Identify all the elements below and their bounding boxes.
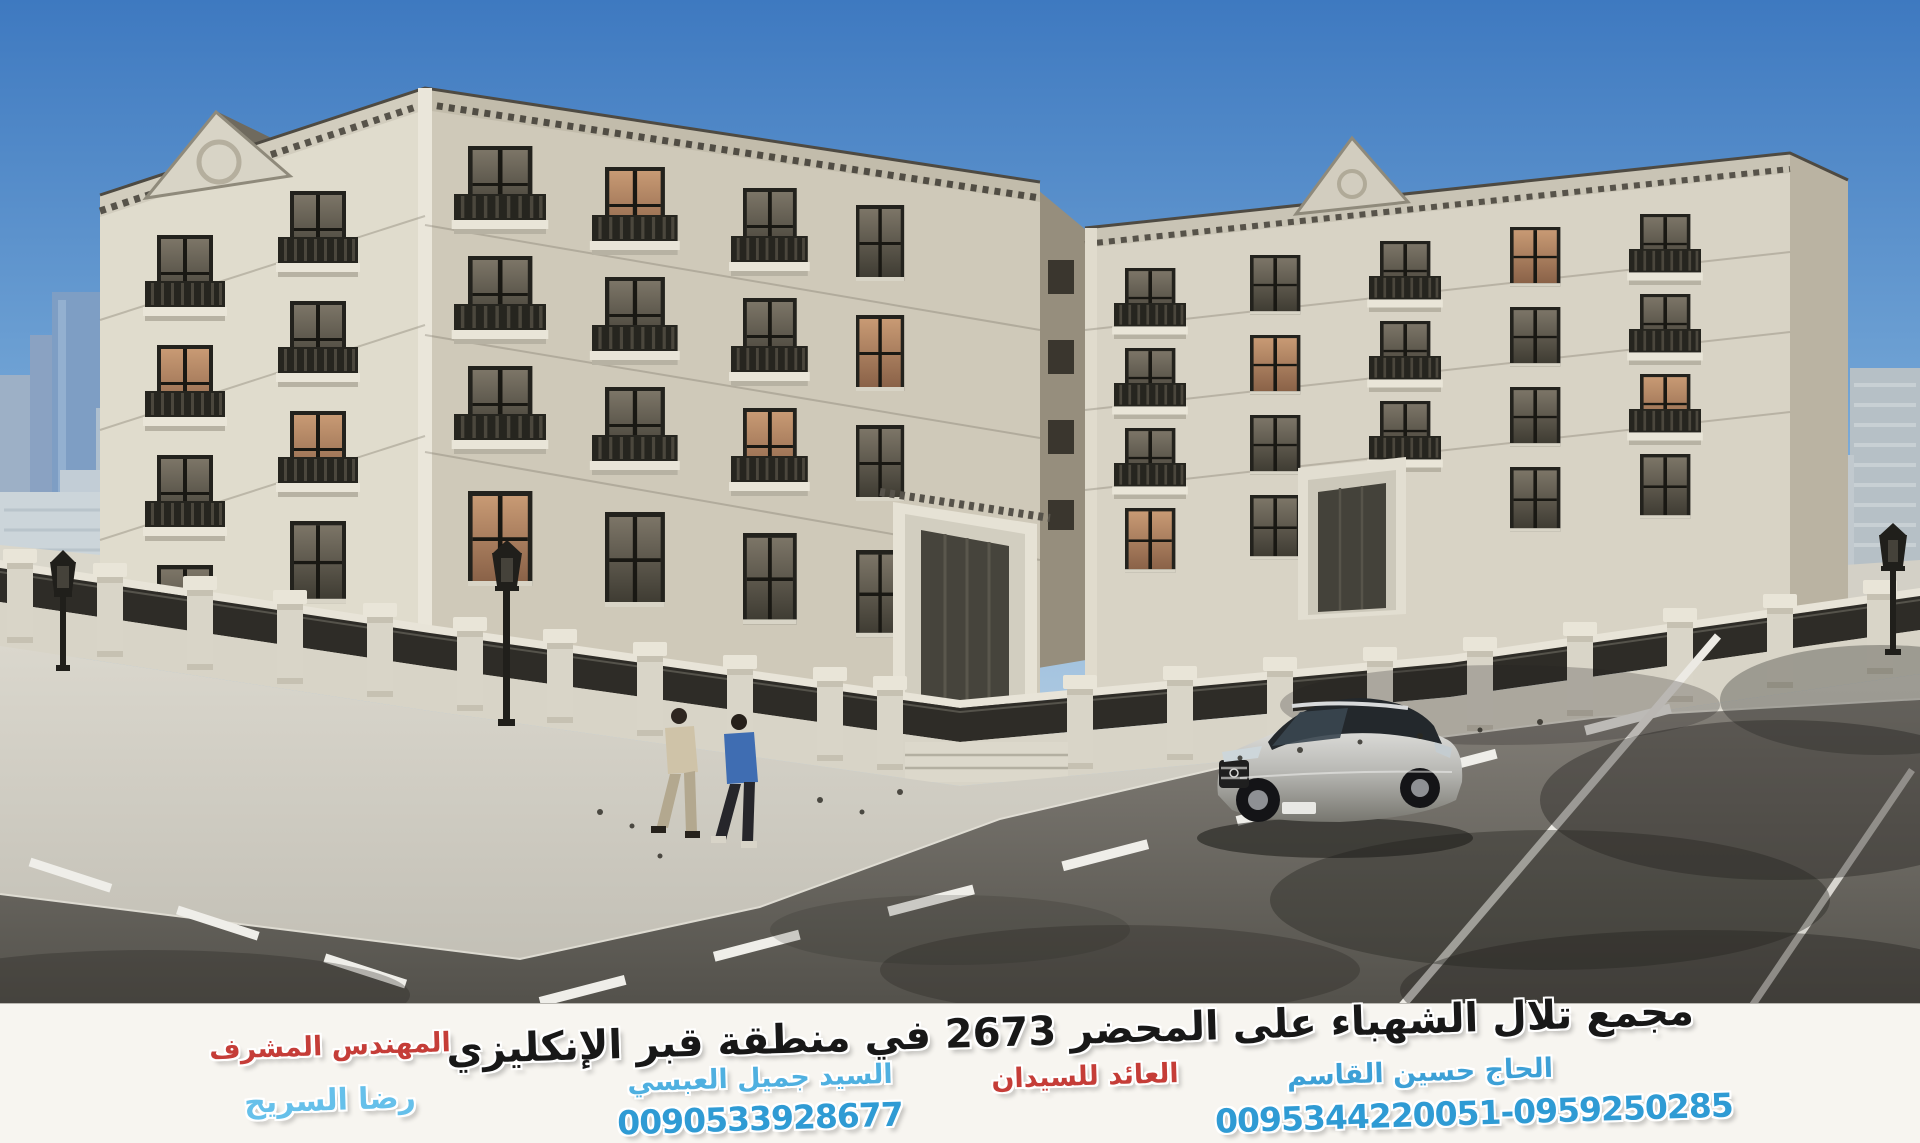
agent-name-right: الحاج حسين القاسم	[1270, 1053, 1571, 1092]
entrance-steps	[905, 742, 1068, 782]
architectural-rendering	[0, 0, 1920, 1006]
car-grille	[1219, 760, 1249, 788]
building-right-side-face	[1790, 153, 1848, 660]
building-right-entrance-door	[1298, 457, 1406, 620]
owners-note: العائد للسيدان	[975, 1059, 1196, 1096]
caption-band: مجمع تلال الشهباء على المحضر 2673 في منط…	[0, 1003, 1920, 1143]
background-building	[1038, 190, 1086, 668]
advertisement-image: مجمع تلال الشهباء على المحضر 2673 في منط…	[0, 0, 1920, 1143]
phone-middle: 0090533928677	[600, 1096, 921, 1142]
supervisor-name: رضا السريح	[215, 1080, 446, 1120]
phone-right: 0095344220051-0959250285	[1215, 1088, 1706, 1140]
